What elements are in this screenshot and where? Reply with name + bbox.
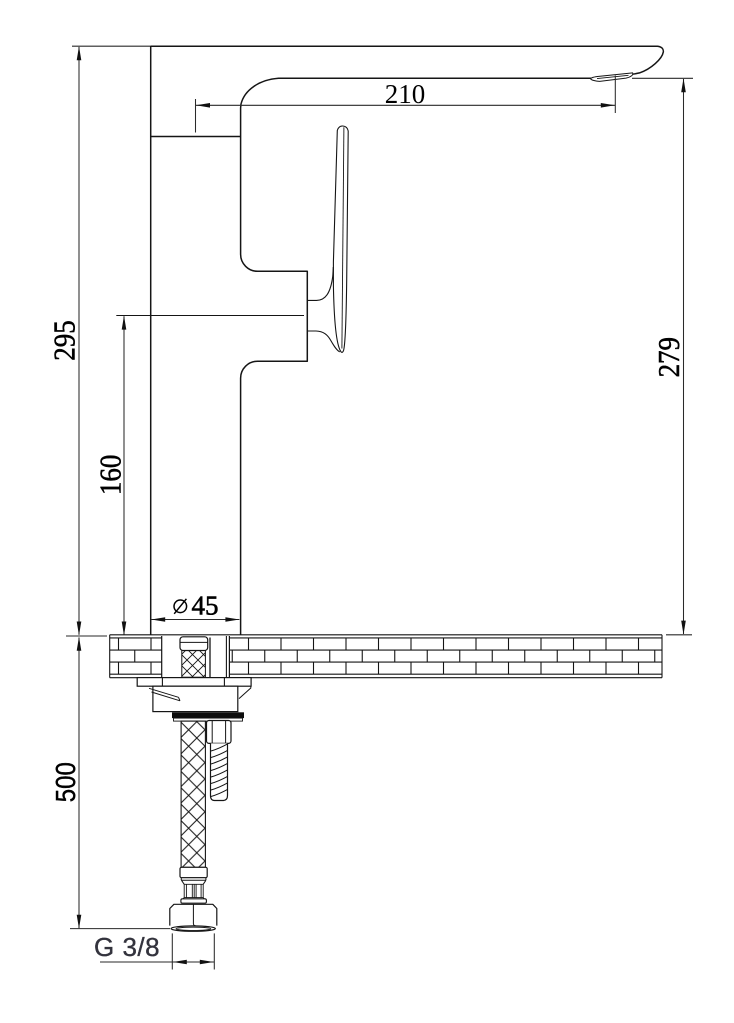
svg-text:160: 160 [94, 455, 128, 495]
svg-text:G 3/8: G 3/8 [94, 932, 160, 962]
svg-text:45: 45 [192, 591, 219, 621]
svg-text:295: 295 [48, 320, 82, 360]
svg-text:279: 279 [653, 337, 687, 377]
svg-text:500: 500 [52, 762, 82, 802]
svg-text:210: 210 [385, 79, 426, 109]
